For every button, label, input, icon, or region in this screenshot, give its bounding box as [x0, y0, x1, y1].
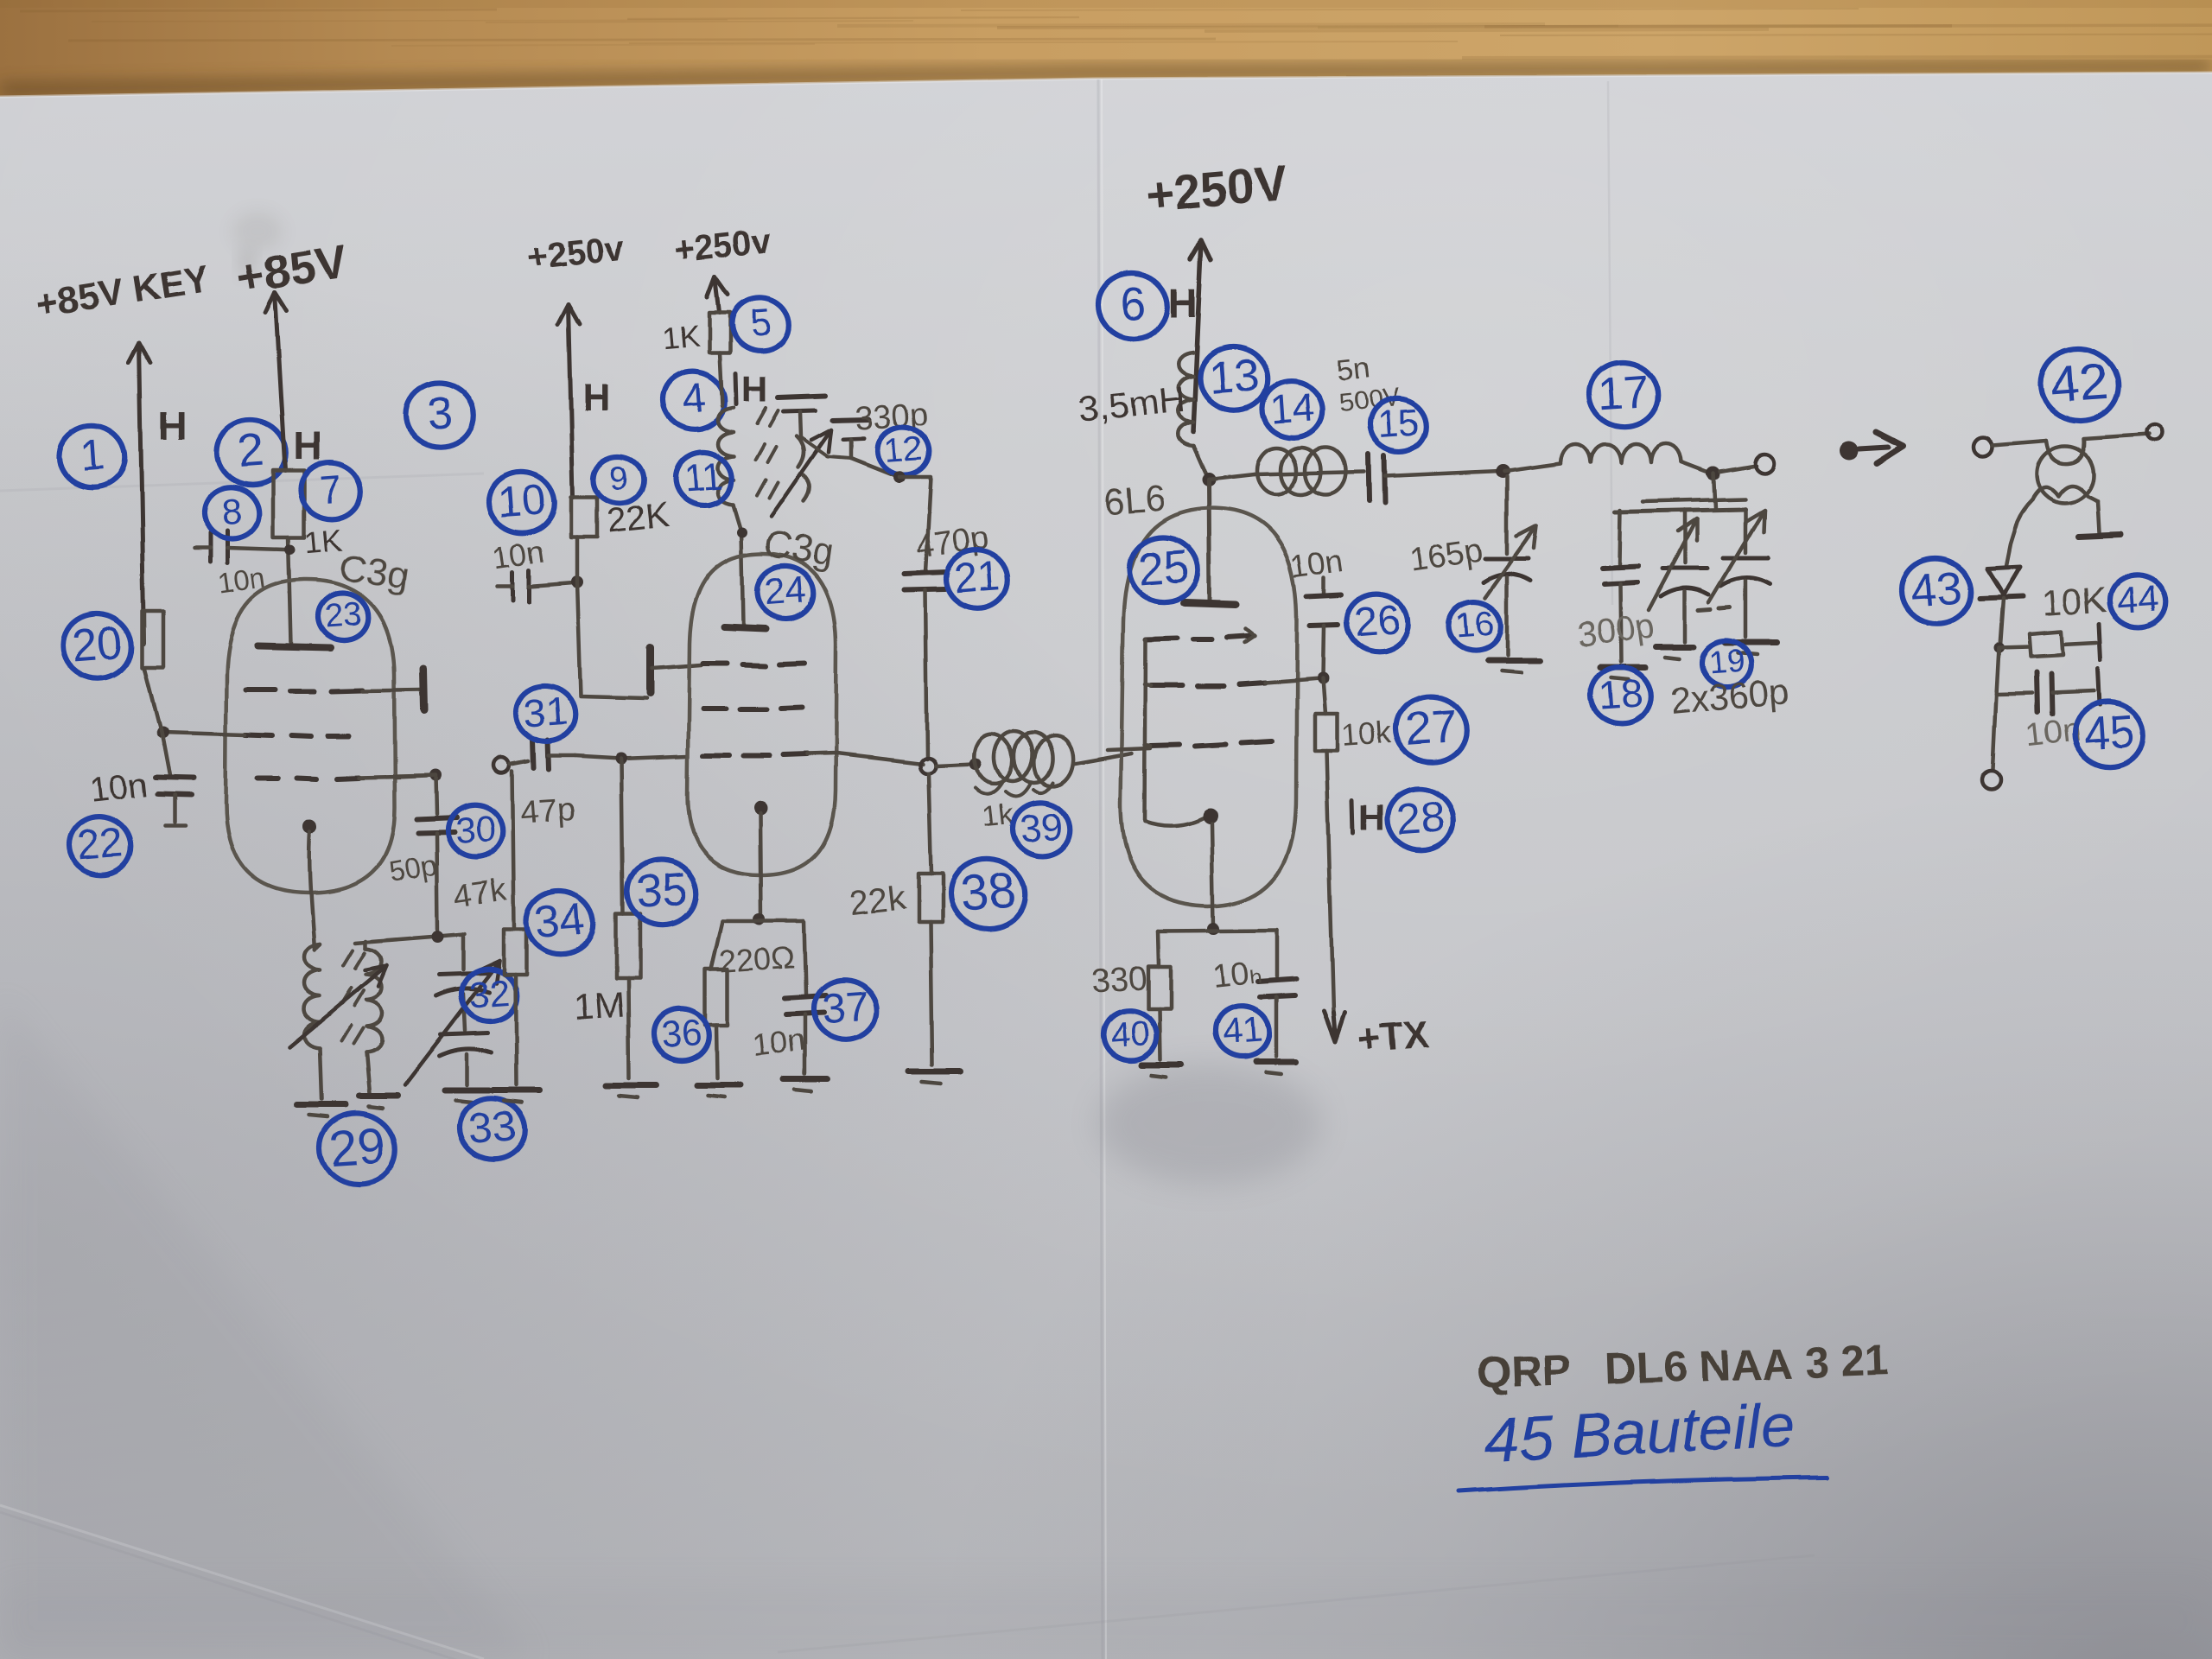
svg-text:33: 33: [467, 1102, 518, 1154]
svg-text:1K: 1K: [302, 522, 343, 561]
svg-text:43: 43: [1910, 563, 1964, 617]
svg-text:38: 38: [958, 863, 1017, 922]
svg-text:24: 24: [763, 569, 808, 613]
svg-text:16: 16: [1454, 605, 1495, 645]
svg-text:36: 36: [660, 1012, 703, 1055]
svg-text:H: H: [582, 377, 610, 419]
svg-text:11: 11: [683, 455, 725, 500]
svg-text:41: 41: [1222, 1008, 1264, 1051]
svg-text:10ₕ: 10ₕ: [1211, 954, 1264, 995]
svg-text:330: 330: [1091, 960, 1148, 1000]
svg-text:10k: 10k: [1341, 714, 1395, 753]
svg-text:H: H: [293, 423, 321, 468]
svg-text:H: H: [1359, 798, 1385, 838]
svg-text:35: 35: [635, 864, 690, 918]
svg-text:18: 18: [1598, 670, 1645, 717]
svg-text:3: 3: [425, 387, 454, 440]
svg-text:21: 21: [1840, 1336, 1890, 1386]
svg-text:3: 3: [1803, 1338, 1829, 1388]
svg-text:H: H: [741, 369, 767, 410]
svg-text:20: 20: [71, 618, 125, 672]
svg-text:25: 25: [1137, 541, 1192, 595]
svg-text:6L6: 6L6: [1103, 477, 1166, 522]
svg-text:2: 2: [237, 425, 266, 478]
svg-text:5n: 5n: [1335, 352, 1371, 388]
svg-text:42: 42: [2049, 352, 2110, 413]
svg-text:H: H: [1168, 282, 1198, 327]
svg-text:10n: 10n: [1288, 543, 1344, 585]
svg-text:37: 37: [820, 983, 870, 1033]
svg-text:17: 17: [1597, 366, 1651, 421]
svg-text:10: 10: [496, 475, 547, 527]
svg-text:H: H: [158, 403, 187, 448]
svg-text:29: 29: [328, 1116, 388, 1176]
svg-text:1M: 1M: [573, 984, 626, 1028]
svg-text:6: 6: [1118, 278, 1147, 331]
svg-text:47p: 47p: [519, 792, 576, 832]
svg-text:10n: 10n: [89, 766, 150, 810]
svg-text:NAA: NAA: [1698, 1339, 1793, 1391]
svg-text:21: 21: [953, 554, 1002, 603]
svg-text:220Ω: 220Ω: [718, 939, 796, 980]
svg-text:15: 15: [1376, 402, 1421, 447]
svg-text:28: 28: [1395, 792, 1446, 844]
svg-text:4: 4: [681, 376, 707, 423]
svg-text:QRP: QRP: [1477, 1344, 1572, 1396]
svg-text:13: 13: [1207, 350, 1261, 404]
svg-text:10K: 10K: [2040, 579, 2107, 624]
svg-text:27: 27: [1404, 700, 1459, 755]
svg-text:+TX: +TX: [1356, 1014, 1429, 1061]
svg-text:44: 44: [2115, 577, 2160, 622]
svg-text:31: 31: [523, 689, 569, 735]
svg-text:39: 39: [1019, 805, 1064, 850]
svg-text:22: 22: [76, 820, 125, 869]
svg-text:10n: 10n: [490, 534, 546, 576]
svg-text:45: 45: [2082, 706, 2137, 760]
svg-text:DL6: DL6: [1605, 1342, 1688, 1393]
svg-text:10n: 10n: [751, 1021, 806, 1062]
svg-text:5: 5: [748, 302, 772, 346]
svg-text:47k: 47k: [452, 872, 511, 915]
svg-text:26: 26: [1353, 597, 1402, 646]
svg-text:1K: 1K: [660, 318, 701, 357]
svg-text:30: 30: [454, 808, 497, 851]
svg-text:32: 32: [467, 972, 511, 1015]
svg-text:22k: 22k: [849, 879, 909, 923]
svg-text:40: 40: [1109, 1012, 1152, 1054]
svg-text:23: 23: [323, 596, 362, 635]
svg-text:8: 8: [220, 491, 244, 533]
svg-text:12: 12: [883, 429, 924, 470]
svg-text:9: 9: [608, 460, 629, 497]
svg-text:7: 7: [318, 466, 343, 512]
svg-text:14: 14: [1269, 384, 1317, 431]
svg-text:34: 34: [533, 894, 587, 948]
svg-text:1: 1: [79, 430, 106, 480]
